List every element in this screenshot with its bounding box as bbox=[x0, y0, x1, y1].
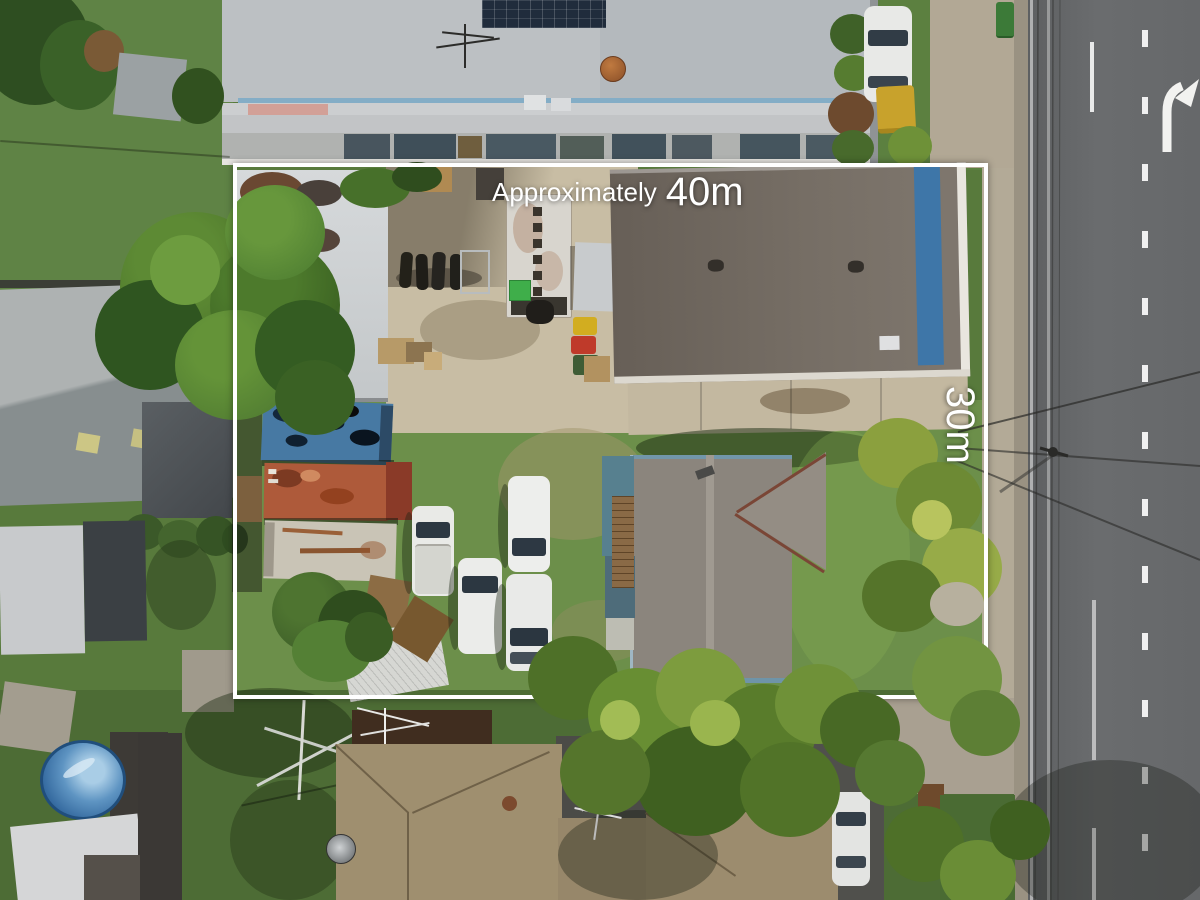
gable-roof-light-slope bbox=[0, 525, 85, 654]
verge-palm bbox=[888, 126, 932, 166]
palm-cover bbox=[560, 730, 650, 815]
window-glass bbox=[672, 135, 712, 159]
green-bins bbox=[996, 2, 1014, 38]
skylight bbox=[76, 432, 101, 454]
lane-line-left2 bbox=[1047, 0, 1050, 900]
ac-unit bbox=[551, 98, 571, 111]
above-ground-pool bbox=[40, 740, 126, 820]
lattice-antenna-mast bbox=[384, 708, 386, 748]
palm-cover bbox=[740, 742, 840, 837]
garden-bush bbox=[832, 130, 874, 166]
industrial-roof-right bbox=[600, 0, 872, 102]
car-windshield bbox=[836, 812, 866, 826]
boundary-depth-label: 30m bbox=[937, 386, 982, 464]
tile-roof-main bbox=[336, 744, 562, 900]
car-rear-window bbox=[836, 856, 866, 868]
window-glass bbox=[344, 134, 390, 159]
palm-cover bbox=[636, 726, 756, 836]
turn-arrow-marking bbox=[1152, 62, 1200, 154]
gable-roof-dark-slope bbox=[83, 520, 147, 641]
hip-ridge bbox=[407, 812, 409, 900]
palm-highlight bbox=[600, 700, 640, 740]
car-windshield bbox=[868, 30, 908, 46]
window-glass bbox=[612, 134, 666, 160]
palm-cover-right bbox=[950, 690, 1020, 756]
lane-line-worn-b bbox=[1092, 600, 1096, 760]
boundary-width-label: Approximately 40m bbox=[492, 170, 744, 215]
window-glass bbox=[740, 134, 800, 160]
roof-vent-fan bbox=[600, 56, 626, 82]
dark-house-roof-left bbox=[142, 402, 232, 518]
roof-vent-small bbox=[502, 796, 517, 811]
road-curb bbox=[1014, 0, 1028, 900]
flat-roof-brown bbox=[352, 710, 492, 748]
dark-structure bbox=[84, 855, 140, 900]
aerial-photo: Approximately 40m 30m bbox=[0, 0, 1200, 900]
width-label-value: 40m bbox=[666, 170, 744, 215]
tv-antenna-mast bbox=[464, 24, 466, 68]
width-label-prefix: Approximately bbox=[492, 177, 657, 208]
bush-dark bbox=[172, 68, 224, 124]
solar-panels bbox=[482, 0, 606, 28]
window-timber bbox=[458, 136, 482, 158]
window-glass bbox=[486, 134, 556, 161]
palm-bottom-right bbox=[990, 800, 1050, 860]
large-tree-highlight bbox=[150, 235, 220, 305]
parked-car-white-vertical bbox=[832, 792, 870, 886]
window-glass bbox=[394, 134, 456, 160]
palm-highlight bbox=[690, 700, 740, 746]
satellite-dish bbox=[326, 834, 356, 864]
property-boundary-outline bbox=[233, 163, 988, 699]
dark-house-bottom-left bbox=[138, 733, 182, 900]
tree-shadow-lawn bbox=[185, 688, 355, 778]
lower-roof-band bbox=[222, 115, 872, 133]
pool-reflection bbox=[61, 755, 97, 782]
lane-line-left bbox=[1030, 0, 1033, 900]
window-glass bbox=[560, 136, 604, 160]
lane-line-worn-a bbox=[1090, 42, 1094, 112]
ac-unit bbox=[524, 95, 546, 110]
house-shadow bbox=[146, 540, 216, 630]
palm-cover bbox=[855, 740, 925, 806]
